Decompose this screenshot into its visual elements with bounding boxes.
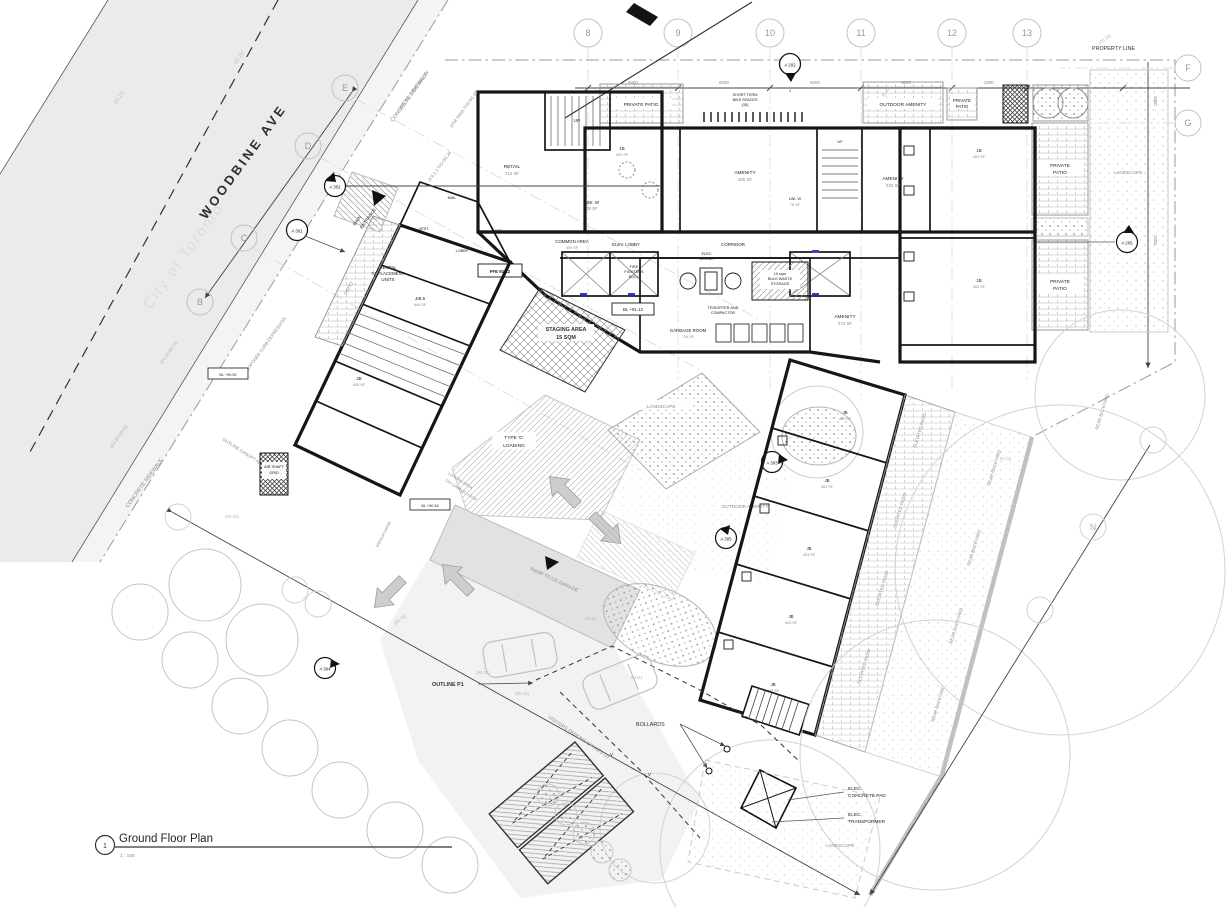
bollards-label: BOLLARDS [636, 722, 665, 728]
jf-tank-note: JF4.1.1 T/G=91.26 [427, 150, 453, 183]
stair-steps-mid [822, 150, 858, 198]
air-shaft-label: GRID [269, 471, 279, 475]
spot-elevation: (91.33) [1098, 32, 1113, 44]
room-label-universal-washroom: UNI. W [585, 200, 600, 205]
kitchen-fixtures [904, 146, 914, 301]
bulk-waste-label: BULK WASTE [768, 277, 793, 281]
curb-depression-note: PROPOSED CURB DEPRESSION [243, 316, 287, 374]
private-patio-label: PATIO [1053, 286, 1067, 292]
room-label-2b: 2B [356, 376, 361, 381]
spot-elevation: 90.34 [585, 616, 597, 621]
landscape-area-south [688, 760, 880, 898]
room-area: 403 SF [803, 553, 816, 557]
room-label-vest: VEST. [419, 227, 430, 231]
room-area: 333 SF [886, 183, 900, 188]
bike-spaces-label: BIKE SPACES [733, 98, 758, 102]
outline-stmt-note: OUTLINE STMT BELOW [397, 69, 430, 112]
floor-plan-sheet: City of Toronto WOODBINE AVE CONCRETE SI… [0, 0, 1226, 907]
outdoor-amenity-label-north: OUTDOOR AMENITY [880, 102, 928, 108]
staging-area-label: 15 SQM [556, 335, 576, 341]
room-label-common-area: COMMON AREA [555, 239, 588, 244]
room-area: 403 SF [973, 285, 986, 289]
units-band [585, 128, 1035, 232]
private-patio-label: PRIVATE [953, 98, 971, 103]
room-label-elec-closet: ELEC. [702, 252, 713, 256]
grid-bubble-E: E [342, 83, 348, 93]
planting-strip [1032, 218, 1088, 236]
room-label-jrb5: JrB.5 [415, 296, 426, 301]
room-area: 400 SF [738, 177, 752, 182]
dim-text: 6000 [810, 80, 820, 85]
room-label-corridor: CORRIDOR [721, 242, 745, 247]
grid-bubble-13: 13 [1022, 28, 1032, 38]
air-shaft-grille [1003, 85, 1028, 123]
private-patio-label: PRIVATE [1050, 163, 1070, 169]
up-label: UP [574, 118, 580, 123]
room-area-retail: 714 SF [505, 171, 519, 176]
landscape-label-south: LANDSCAPE [825, 843, 854, 849]
room-label-jb: JB [842, 410, 847, 415]
staging-area-label: STAGING AREA [546, 327, 587, 333]
section-marker-a304: A 304 [315, 658, 341, 679]
svg-text:A 202: A 202 [784, 63, 796, 68]
svg-text:A 303: A 303 [766, 461, 778, 466]
room-area: 76 SF [586, 206, 598, 211]
landscape-label-courtyard: LANDSCAPE [646, 404, 675, 410]
svg-text:A 305: A 305 [720, 537, 732, 542]
grid-bubble-8: 8 [585, 28, 590, 38]
room-label-jb: JB [806, 546, 811, 551]
room-label-rental-units: RENTAL [380, 265, 398, 270]
room-label-1b-east: 1B [976, 148, 981, 153]
detail-number: 1 [789, 89, 791, 93]
trisorter-label: COMPACTOR [711, 311, 736, 315]
firefighter-elev-label: FIGHTERS [624, 270, 644, 274]
bike-spaces-label: SHORT TERM [733, 93, 758, 97]
room-area: 403 SF [821, 485, 834, 489]
bl-level-label: BL +91.12 [623, 307, 644, 312]
room-label-1b: 1B [619, 146, 624, 151]
grid-bubble-10: 10 [765, 28, 775, 38]
room-label-amenity-400: AMENITY [734, 170, 756, 176]
room-area: 403 SF [973, 155, 986, 159]
ground-floor-plan-drawing: City of Toronto WOODBINE AVE CONCRETE SI… [0, 0, 1226, 907]
grid-bubble-F: F [1185, 63, 1191, 73]
room-label-rental-units: UNITS [381, 277, 394, 282]
section-marker-a202: A 202 1 [780, 54, 801, 94]
trench-drain-label: TRENCH DRAIN [375, 521, 392, 549]
room-label-jb: JB [770, 682, 775, 687]
grid-bubble-D: D [305, 141, 312, 151]
svg-text:A 301: A 301 [291, 229, 303, 234]
room-area: 600 SF [353, 383, 366, 387]
grid-bubble-9: 9 [675, 28, 680, 38]
room-label-universal-washroom: UNI. W [789, 197, 802, 201]
room-label-elev-lobby: ELEV. LOBBY [612, 242, 640, 247]
drawing-title: Ground Floor Plan [119, 833, 213, 845]
drawing-scale: 1 : 100 [120, 853, 135, 859]
grid-bubble-11: 11 [856, 28, 865, 38]
bulk-waste-label: STORAGE [771, 282, 790, 286]
room-label-1b-east2: 1B [976, 278, 981, 283]
grid-bubble-N: N [1090, 522, 1097, 532]
svg-text:A 205: A 205 [1121, 241, 1133, 246]
room-label-garbage: GARBAGE ROOM [670, 328, 707, 333]
bike-rack-row [704, 112, 802, 122]
bulk-waste-label: 10 sqm [774, 272, 786, 276]
outdoor-amenity-label-courtyard: OUTDOOR AMENITY [722, 504, 770, 510]
east-units-block [900, 128, 1035, 362]
section-cut-flag [626, 3, 658, 26]
landscape-area-east [1090, 70, 1168, 332]
bl-level-label: BL +90.92 [219, 373, 236, 377]
dim-text: 6000 [719, 80, 729, 85]
room-area: 76 SF [790, 203, 801, 207]
exit-stair [742, 686, 809, 735]
private-patio-label: PRIVATE [1050, 279, 1070, 285]
spot-elevation: (90.34) [225, 514, 239, 519]
room-label-lobby: LOBBY [456, 249, 469, 253]
room-label-amenity-333: AMENITY [882, 176, 904, 182]
firefighter-elev-label: ELEV. [629, 275, 639, 279]
property-line-label: PROPERTY LINE [1092, 46, 1135, 52]
planting-bed [1033, 85, 1088, 121]
room-label-jb: JB [788, 614, 793, 619]
bl-level-label: BL +90.34 [421, 504, 438, 508]
room-label-jb: JB [824, 478, 829, 483]
private-patio-label: PATIO [956, 104, 969, 109]
planter-bed [782, 407, 856, 465]
air-shaft-label: AIR SHAFT [264, 465, 285, 469]
room-label-retail: RETAIL [504, 164, 521, 170]
outline-p1-label: OUTLINE P1 [432, 682, 464, 688]
svg-text:A 302: A 302 [329, 185, 341, 190]
stall-v-mark: V [610, 752, 613, 757]
stall-v-mark: V [648, 772, 651, 777]
room-area: 403 SF [839, 417, 852, 421]
title-block: 1 Ground Floor Plan 1 : 100 [96, 833, 453, 859]
room-area: 400 SF [616, 153, 629, 157]
detail-number-text: 1 [103, 843, 107, 850]
landscape-label-east: LANDSCAPE [1113, 170, 1142, 176]
grid-bubbles-top: 8 9 10 11 12 13 [574, 19, 1041, 47]
grid-bubble-C: C [241, 233, 248, 243]
room-area: 403 SF [785, 621, 798, 625]
stm-tank-note: STM TANK T/G=91.32 [449, 90, 479, 129]
bike-spaces-label: (35) [742, 103, 749, 107]
firefighter-elev-label: FIRE [630, 265, 639, 269]
grid-bubble-G: G [1184, 118, 1191, 128]
room-area: 400 SF [566, 246, 579, 250]
car-model-note: AD111 [630, 675, 643, 680]
room-area: 724 SF [682, 335, 695, 339]
private-patio-label: PRIVATE PATIO [624, 102, 659, 108]
up-label: UP [837, 140, 843, 144]
dim-text: 3300 [984, 80, 994, 85]
room-area: 272 SF [838, 321, 852, 326]
private-patio-label: PATIO [1053, 170, 1067, 176]
type-g-loading-label: TYPE 'G' [504, 435, 524, 441]
spot-elevation: (90.10) [515, 691, 529, 696]
svg-text:A 304: A 304 [319, 667, 331, 672]
grid-bubble-12: 12 [947, 28, 957, 38]
room-area: 604 SF [414, 303, 427, 307]
room-label-amenity-272: AMENITY [834, 314, 856, 320]
type-g-loading-label: LOADING [503, 443, 525, 449]
trisorter-label: TRISORTER AND [708, 306, 739, 310]
grid-bubble-B: B [197, 297, 203, 307]
garbage-bins [716, 324, 803, 342]
room-label-mail: MAIL [448, 196, 457, 200]
